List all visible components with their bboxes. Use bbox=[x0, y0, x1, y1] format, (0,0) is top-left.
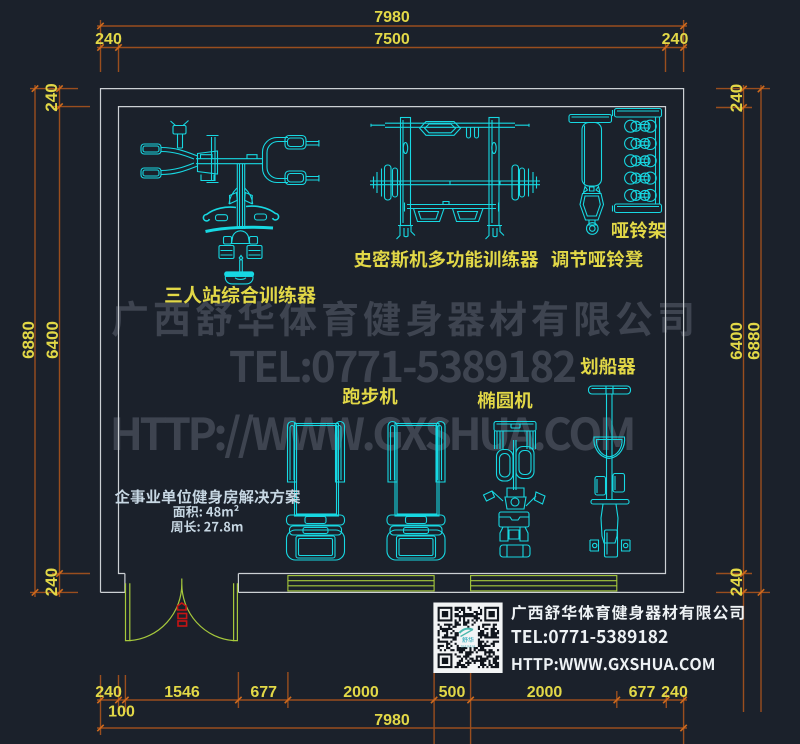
svg-text:677: 677 bbox=[629, 684, 656, 701]
svg-text:2000: 2000 bbox=[527, 684, 563, 701]
svg-text:100: 100 bbox=[108, 704, 135, 721]
svg-text:6880: 6880 bbox=[745, 322, 764, 360]
svg-text:6880: 6880 bbox=[19, 321, 38, 359]
svg-text:6400: 6400 bbox=[727, 322, 746, 360]
svg-text:6400: 6400 bbox=[43, 321, 62, 359]
svg-text:240: 240 bbox=[42, 83, 61, 111]
svg-text:677: 677 bbox=[250, 684, 277, 701]
svg-text:7980: 7980 bbox=[374, 9, 410, 26]
svg-text:2000: 2000 bbox=[343, 684, 379, 701]
svg-text:SHUHUA: SHUHUA bbox=[461, 645, 476, 649]
svg-text:500: 500 bbox=[439, 684, 466, 701]
svg-text:240: 240 bbox=[42, 568, 61, 596]
svg-text:7980: 7980 bbox=[374, 712, 410, 729]
svg-text:240: 240 bbox=[727, 568, 746, 596]
svg-text:240: 240 bbox=[95, 684, 122, 701]
svg-text:240: 240 bbox=[662, 31, 689, 48]
svg-text:240: 240 bbox=[95, 31, 122, 48]
svg-text:240: 240 bbox=[727, 84, 746, 112]
svg-text:1546: 1546 bbox=[164, 684, 200, 701]
svg-text:7500: 7500 bbox=[374, 31, 410, 48]
svg-text:240: 240 bbox=[661, 684, 688, 701]
